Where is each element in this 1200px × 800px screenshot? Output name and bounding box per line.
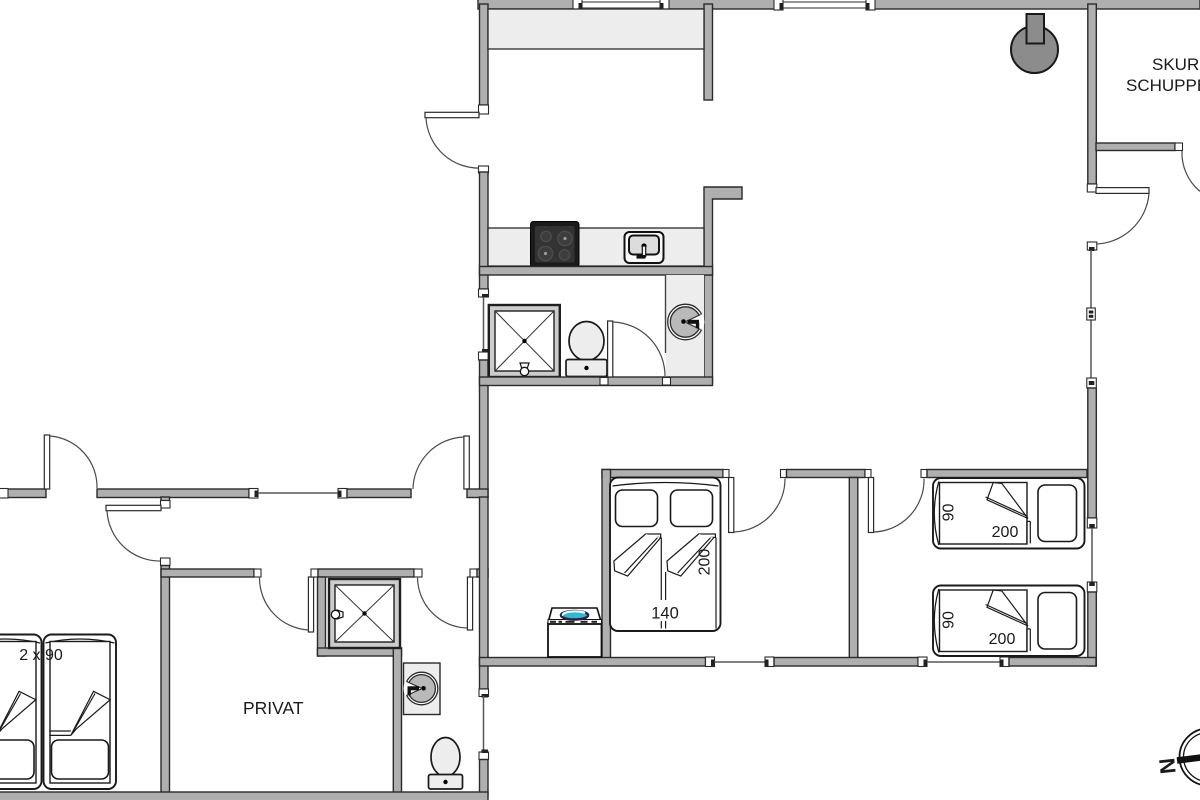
svg-text:N: N	[1154, 757, 1181, 775]
svg-text:200: 200	[989, 631, 1016, 648]
svg-text:140: 140	[651, 605, 679, 623]
svg-text:SCHUPPEN: SCHUPPEN	[1126, 76, 1200, 95]
svg-text:200: 200	[992, 524, 1019, 541]
svg-text:PRIVAT: PRIVAT	[243, 698, 304, 718]
svg-text:90: 90	[941, 504, 958, 522]
svg-text:90: 90	[941, 611, 958, 629]
svg-text:2 x 90: 2 x 90	[19, 647, 63, 664]
svg-text:200: 200	[697, 549, 714, 576]
svg-text:SKUR /: SKUR /	[1152, 55, 1200, 74]
